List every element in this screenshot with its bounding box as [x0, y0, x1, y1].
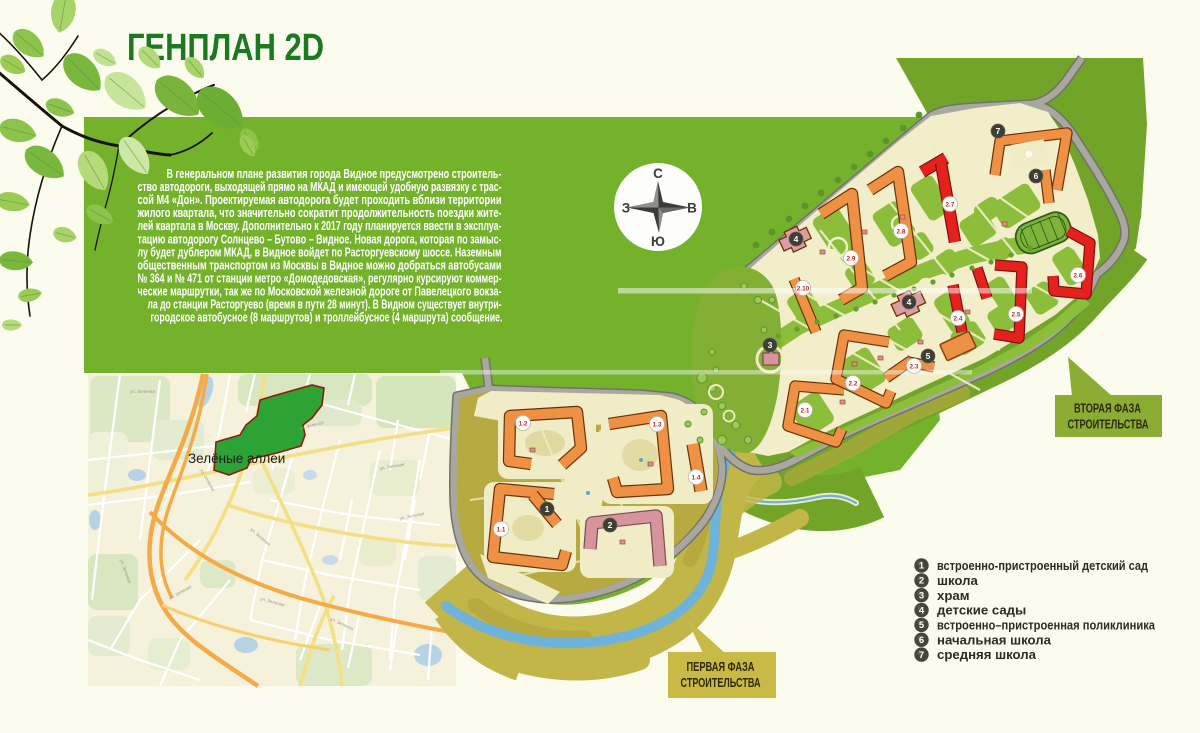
svg-text:1.2: 1.2 [519, 420, 528, 427]
svg-text:2.6: 2.6 [1074, 272, 1083, 279]
svg-text:2.3: 2.3 [910, 363, 919, 370]
svg-text:1.3: 1.3 [653, 421, 662, 428]
svg-text:4: 4 [794, 234, 799, 244]
svg-text:2.7: 2.7 [946, 201, 955, 208]
svg-text:2: 2 [919, 576, 924, 587]
svg-text:ул. Зеленая: ул. Зеленая [130, 389, 155, 394]
svg-text:2.1: 2.1 [801, 407, 810, 414]
svg-text:5: 5 [919, 620, 925, 631]
svg-text:детские сады: детские сады [937, 603, 1026, 618]
svg-text:средняя школа: средняя школа [937, 647, 1037, 662]
svg-text:СТРОИТЕЛЬСТВА: СТРОИТЕЛЬСТВА [681, 676, 761, 690]
svg-text:СТРОИТЕЛЬСТВА: СТРОИТЕЛЬСТВА [1068, 418, 1149, 432]
svg-text:1.4: 1.4 [692, 474, 701, 481]
svg-text:5: 5 [926, 351, 931, 361]
svg-text:1: 1 [919, 561, 925, 572]
svg-text:2.4: 2.4 [954, 315, 963, 322]
svg-text:7: 7 [996, 126, 1001, 136]
svg-text:2.8: 2.8 [897, 228, 906, 235]
svg-text:2: 2 [608, 520, 613, 530]
svg-text:ВТОРАЯ ФАЗА: ВТОРАЯ ФАЗА [1074, 402, 1141, 416]
svg-text:ПЕРВАЯ ФАЗА: ПЕРВАЯ ФАЗА [687, 660, 755, 674]
svg-text:Зелёные аллеи: Зелёные аллеи [188, 451, 285, 466]
svg-text:начальная школа: начальная школа [937, 632, 1052, 647]
svg-text:2.2: 2.2 [849, 380, 858, 387]
svg-text:2.5: 2.5 [1012, 311, 1021, 318]
svg-text:7: 7 [919, 650, 924, 661]
svg-text:3: 3 [768, 340, 773, 350]
svg-text:6: 6 [1034, 171, 1039, 181]
svg-text:Ю: Ю [651, 234, 665, 249]
svg-text:4: 4 [919, 605, 925, 616]
svg-text:2.9: 2.9 [847, 255, 856, 262]
svg-text:встроенно–пристроенная поликли: встроенно–пристроенная поликлиника [937, 618, 1156, 633]
svg-text:З: З [622, 201, 630, 216]
svg-text:2.10: 2.10 [797, 285, 810, 292]
svg-text:В: В [687, 201, 697, 216]
svg-text:С: С [653, 166, 663, 181]
svg-text:1.1: 1.1 [497, 526, 506, 533]
svg-text:школа: школа [937, 573, 979, 588]
svg-text:встроенно-пристроенный детский: встроенно-пристроенный детский сад [937, 558, 1149, 573]
svg-text:1: 1 [545, 504, 550, 514]
svg-text:городское автобусное (8 маршру: городское автобусное (8 маршрутов) и тро… [151, 310, 503, 325]
svg-text:6: 6 [919, 635, 924, 646]
svg-text:4: 4 [907, 297, 912, 307]
svg-text:3: 3 [919, 590, 924, 601]
svg-text:храм: храм [937, 588, 969, 603]
